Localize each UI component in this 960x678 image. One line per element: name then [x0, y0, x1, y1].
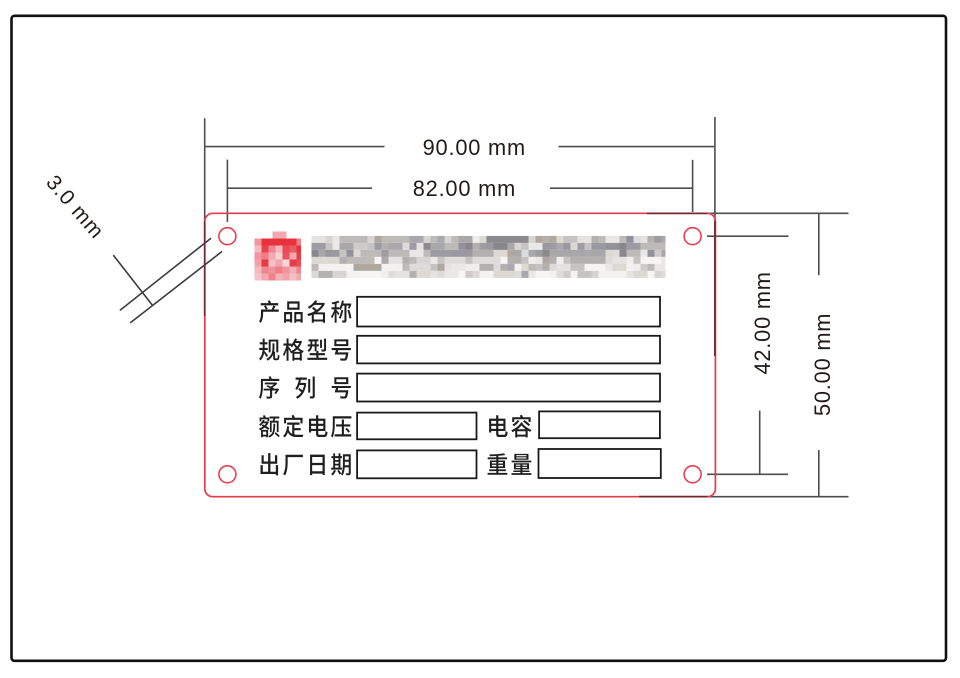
svg-text:90.00 mm: 90.00 mm: [423, 135, 526, 160]
svg-text:42.00 mm: 42.00 mm: [750, 271, 775, 374]
svg-text:82.00 mm: 82.00 mm: [413, 176, 516, 201]
svg-text:50.00 mm: 50.00 mm: [810, 313, 835, 416]
svg-text:3.0 mm: 3.0 mm: [41, 171, 108, 243]
